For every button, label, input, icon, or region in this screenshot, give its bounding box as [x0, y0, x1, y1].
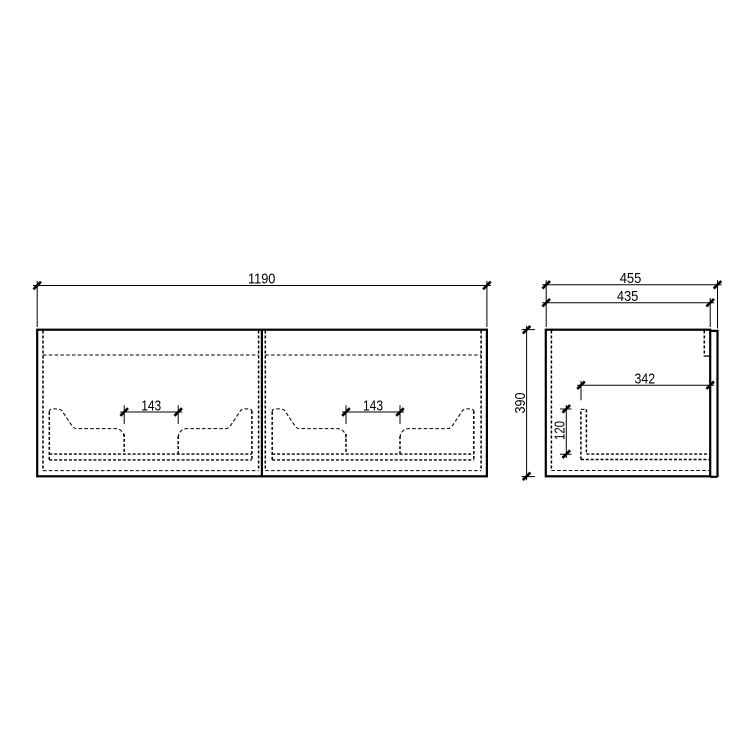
svg-text:455: 455 — [620, 270, 642, 287]
svg-text:342: 342 — [635, 370, 656, 387]
svg-text:1190: 1190 — [248, 271, 275, 288]
svg-text:143: 143 — [363, 397, 383, 414]
svg-text:435: 435 — [617, 288, 639, 305]
svg-text:120: 120 — [551, 421, 568, 440]
svg-text:143: 143 — [141, 397, 161, 414]
svg-text:390: 390 — [512, 393, 529, 414]
